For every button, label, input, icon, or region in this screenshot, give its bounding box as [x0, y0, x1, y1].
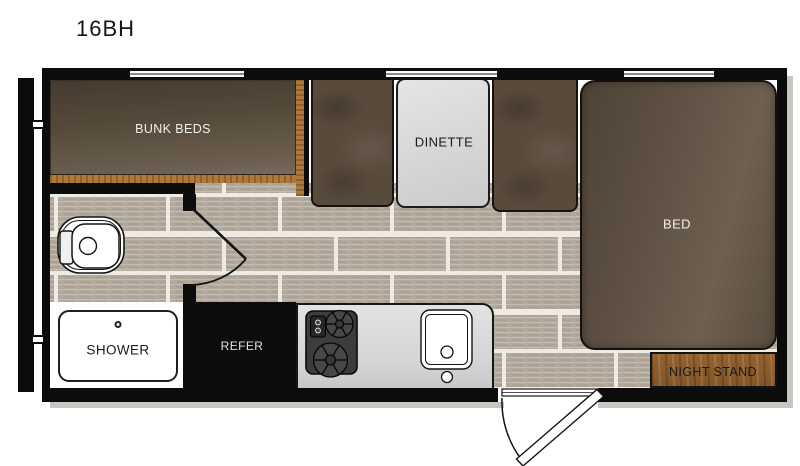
wall-left: [42, 68, 50, 402]
kitchen-counter: [296, 303, 494, 390]
window-bunk: [130, 69, 244, 79]
bathroom-wall: [48, 183, 195, 194]
bunk-beds-label: BUNK BEDS: [135, 122, 211, 136]
window-mullion: [386, 73, 497, 75]
bunk-wood-trim-side: [296, 80, 304, 196]
bathroom-door-jamb-bottom: [183, 284, 196, 302]
wall-right: [777, 68, 787, 402]
wall-bottom-left: [42, 388, 498, 402]
dinette-bench-right: [492, 80, 578, 212]
floorplan-canvas: 16BH: [0, 0, 800, 466]
tongue-bracket-bottom: [33, 335, 43, 344]
window-mullion: [667, 73, 714, 75]
bed-label: BED: [663, 217, 691, 232]
hitch-tongue-bar: [18, 78, 34, 392]
dinette-bench-left: [311, 80, 394, 207]
refer-label: REFER: [221, 339, 264, 353]
bed: [580, 80, 777, 350]
night-stand-label: NIGHT STAND: [669, 365, 757, 379]
bathroom-door-jamb-top: [183, 194, 196, 211]
tongue-bracket-top: [33, 120, 43, 129]
shower-drain-icon: [115, 321, 122, 328]
shower-label: SHOWER: [86, 343, 149, 358]
window-bed-right: [667, 69, 714, 79]
window-mullion: [130, 73, 244, 75]
floorplan-title: 16BH: [76, 16, 135, 42]
window-dinette: [386, 69, 497, 79]
window-mullion: [624, 73, 667, 75]
bunk-partition-wall: [304, 80, 309, 196]
bunk-wood-trim-bottom: [50, 175, 304, 183]
wall-bottom-right: [598, 388, 787, 402]
dinette-label: DINETTE: [415, 135, 473, 150]
window-bed-left: [624, 69, 667, 79]
